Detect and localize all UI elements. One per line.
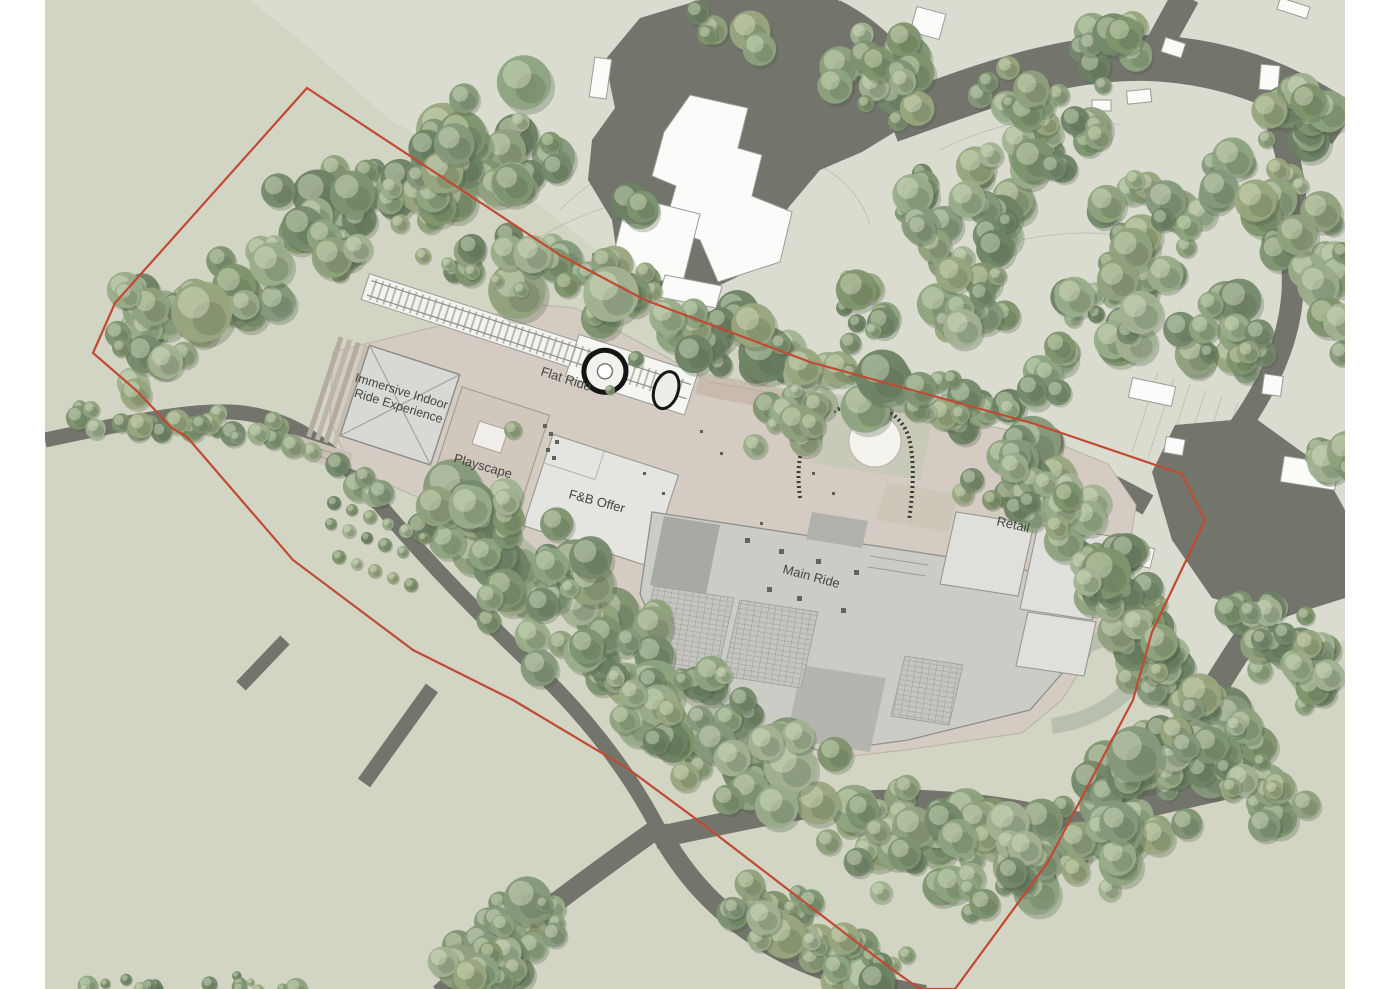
page-margin-left — [0, 0, 45, 989]
masterplan-page: Flat Ride Immersive Indoor Ride Experien… — [0, 0, 1400, 989]
page-margin-right — [1345, 0, 1400, 989]
site-plan-svg: Flat Ride Immersive Indoor Ride Experien… — [0, 0, 1400, 989]
